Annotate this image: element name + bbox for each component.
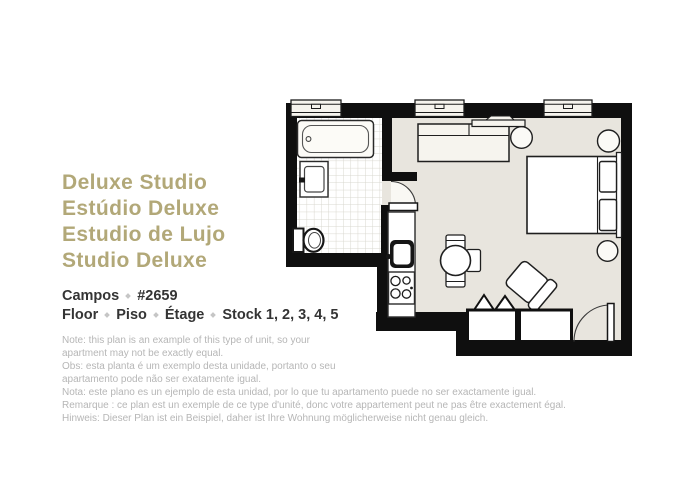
floor-plan-page: Deluxe Studio Estúdio Deluxe Estudio de … <box>0 0 700 500</box>
disclaimer-notes: Note: this plan is an example of this ty… <box>62 334 662 425</box>
side-table-2 <box>598 130 620 152</box>
building-unit-line: Campos#2659 <box>62 287 662 306</box>
note-line-en-1: Note: this plan is an example of this ty… <box>62 334 662 347</box>
page-title: Deluxe Studio Estúdio Deluxe Estudio de … <box>62 170 662 274</box>
floor-line: FloorPisoÉtageStock 1, 2, 3, 4, 5 <box>62 306 662 325</box>
note-line-pt-1: Obs: esta planta é um exemplo desta unid… <box>62 360 662 373</box>
window-living <box>415 100 464 117</box>
separator-dot <box>153 312 159 318</box>
note-line-pt-2: apartamento pode não ser exatamente igua… <box>62 373 662 386</box>
floors-stock: Stock 1, 2, 3, 4, 5 <box>222 307 338 323</box>
note-line-de: Hinweis: Dieser Plan ist ein Beispiel, d… <box>62 412 662 425</box>
bathtub <box>298 121 374 158</box>
window-bathroom <box>291 100 341 117</box>
floor-word-en: Floor <box>62 307 98 323</box>
windows <box>291 100 592 117</box>
info-panel: Deluxe Studio Estúdio Deluxe Estudio de … <box>62 170 662 425</box>
title-line-en: Deluxe Studio <box>62 170 662 196</box>
separator-dot <box>104 312 110 318</box>
separator-dot <box>211 312 217 318</box>
sofa <box>418 124 509 162</box>
unit-number: #2659 <box>137 288 177 304</box>
floor-word-fr: Étage <box>165 307 205 323</box>
unit-info: Campos#2659 FloorPisoÉtageStock 1, 2, 3,… <box>62 287 662 325</box>
window-bedroom <box>544 100 592 117</box>
building-name: Campos <box>62 288 119 304</box>
floor-word-pt: Piso <box>116 307 147 323</box>
note-line-fr: Remarque : ce plan est un exemple de ce … <box>62 399 662 412</box>
note-line-en-2: apartment may not be exactly equal. <box>62 347 662 360</box>
title-line-fr: Studio Deluxe <box>62 248 662 274</box>
title-line-es: Estudio de Lujo <box>62 222 662 248</box>
note-line-es: Nota: este plano es un ejemplo de esta u… <box>62 386 662 399</box>
side-table-1 <box>511 127 533 149</box>
title-line-pt: Estúdio Deluxe <box>62 196 662 222</box>
separator-dot <box>125 293 131 299</box>
